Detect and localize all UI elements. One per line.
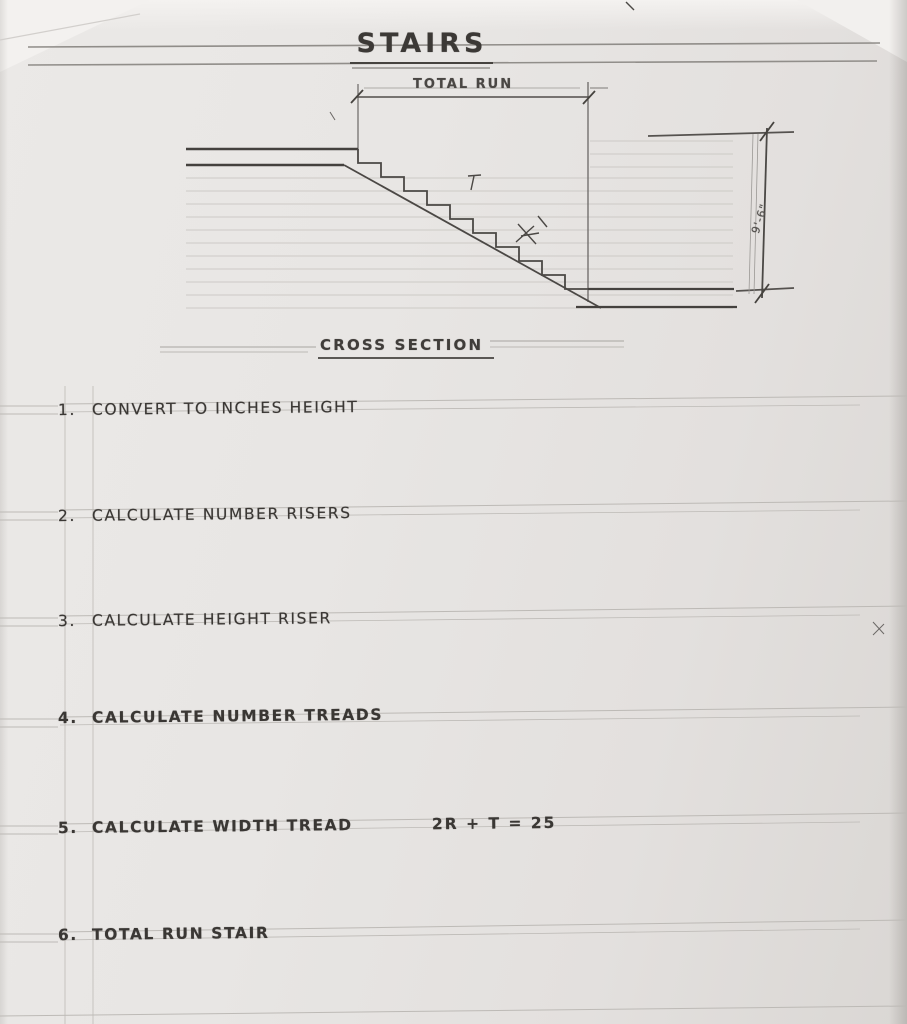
list-item-text: CONVERT TO INCHES HEIGHT [92, 398, 359, 419]
list-item-number: 3. [58, 612, 76, 630]
list-item-text: CALCULATE NUMBER TREADS [92, 706, 383, 727]
tread-formula: 2R + T = 25 [432, 814, 557, 833]
page-title: STAIRS [348, 28, 496, 59]
list-item-text: TOTAL RUN STAIR [92, 924, 270, 944]
notebook-page-photo: STAIRS TOTAL RUN 9'-6" CROSS SECTION 1. … [0, 0, 907, 1024]
list-item-number: 5. [58, 819, 78, 837]
list-item-number: 4. [58, 709, 78, 727]
list-item-number: 2. [58, 507, 76, 525]
total-run-dimension-label: TOTAL RUN [413, 77, 513, 92]
list-item-number: 6. [58, 926, 78, 944]
list-item-text: CALCULATE HEIGHT RISER [92, 609, 332, 630]
list-item-number: 1. [58, 401, 76, 419]
drawing-caption: CROSS SECTION [320, 336, 483, 354]
list-item-text: CALCULATE WIDTH TREAD [92, 816, 353, 837]
list-item-text: CALCULATE NUMBER RISERS [92, 504, 352, 525]
